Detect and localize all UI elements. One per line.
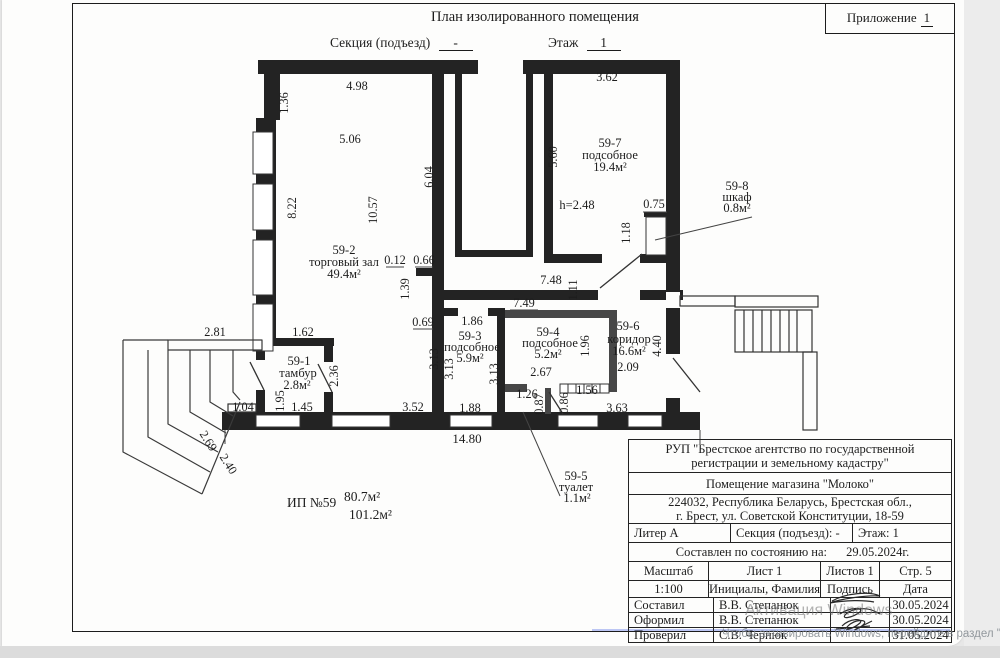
- section-cell: Секция (подъезд): -: [731, 524, 853, 542]
- room-label-59-7: 59-7 подсобное 19.4м²: [582, 136, 638, 174]
- room-label-59-4: 59-4 подсобное 5.2м²: [522, 325, 578, 361]
- svg-text:19.4м²: 19.4м²: [593, 160, 627, 174]
- dim-label: 4.40: [650, 335, 664, 357]
- stamp-organization: РУП "Брестское агентство по государствен…: [629, 440, 951, 473]
- svg-text:59-6: 59-6: [617, 319, 640, 333]
- signature-cell: [831, 613, 890, 627]
- stamp-subheader-row: 1:100 Инициалы, Фамилия Подпись Дата: [629, 581, 951, 598]
- room-label-59-8: 59-8 шкаф 0.8м²: [722, 179, 751, 215]
- compiled-label: Составлен по состоянию на:: [676, 545, 827, 559]
- stamp-premises: Помещение магазина "Молоко": [629, 473, 951, 495]
- dim-label: 3.13: [442, 358, 456, 380]
- date-header: Дата: [880, 581, 951, 597]
- dim-label: 3.62: [596, 70, 618, 84]
- title-block: РУП "Брестское агентство по государствен…: [628, 439, 952, 643]
- dim-label: 3.52: [402, 400, 424, 414]
- dim-label: 7.49: [513, 296, 535, 310]
- dim-label: 1.56: [576, 383, 598, 397]
- area-total-bottom: 101.2м²: [349, 507, 392, 522]
- stamp-address: 224032, Республика Беларусь, Брестская о…: [629, 495, 951, 524]
- dim-label: 0.87: [532, 393, 546, 415]
- dim-label: 1.04: [232, 400, 254, 414]
- svg-text:5.9м²: 5.9м²: [456, 351, 484, 365]
- initials-header: Инициалы, Фамилия: [709, 581, 821, 597]
- scale-value: 1:100: [629, 581, 709, 597]
- dim-label: 7.48: [540, 273, 562, 287]
- svg-text:49.4м²: 49.4м²: [327, 267, 361, 281]
- dim-label: 0.75: [643, 197, 665, 211]
- dim-label: 3.13: [427, 348, 441, 370]
- dim-label: 1.18: [619, 222, 633, 244]
- dim-label: 1.86: [461, 314, 483, 328]
- dim-label: 14.80: [452, 431, 481, 446]
- room-label-59-1: 59-1 тамбур 2.8м²: [279, 354, 316, 392]
- dim-label: 2.81: [204, 325, 226, 339]
- dim-label: 1.88: [459, 401, 481, 415]
- dim-label: 0.66: [413, 253, 435, 267]
- compiled-date: 29.05.2024г.: [846, 545, 909, 559]
- room-label-59-5: 59-5 туалет 1.1м²: [559, 469, 594, 505]
- totals-block: ИП №59 80.7м² 101.2м²: [287, 489, 392, 522]
- dim-label: 1.96: [578, 335, 592, 357]
- svg-text:5.2м²: 5.2м²: [534, 347, 562, 361]
- ceiling-height-note: h=2.48: [559, 198, 594, 212]
- dim-label: 1.39: [398, 278, 412, 300]
- dim-label: 2.40: [217, 451, 240, 477]
- floor-cell: Этаж: 1: [853, 524, 951, 542]
- unit-number: ИП №59: [287, 495, 337, 510]
- dim-label: 5.06: [339, 132, 361, 146]
- stamp-liter-row: Литер А Секция (подъезд): - Этаж: 1: [629, 524, 951, 543]
- dim-label: 6.04: [422, 166, 436, 188]
- dim-label: 2.69: [197, 428, 220, 454]
- closet-59-8: [646, 217, 666, 255]
- dim-label: 2.36: [327, 365, 341, 387]
- liter-cell: Литер А: [629, 524, 731, 542]
- dim-label: 1.36: [277, 92, 291, 114]
- signature-cell: [831, 628, 890, 642]
- windows-left: [253, 132, 273, 351]
- dim-label: 2.09: [617, 360, 639, 374]
- svg-text:0.8м²: 0.8м²: [723, 201, 751, 215]
- stamp-row-compiled: Составил В.В. Степанюк 30.05.2024: [629, 598, 951, 613]
- dim-label: 1.45: [291, 400, 313, 414]
- sign-header: Подпись: [821, 581, 880, 597]
- svg-text:2.8м²: 2.8м²: [283, 378, 311, 392]
- dim-label: 2.67: [530, 365, 552, 379]
- dim-label: 4.98: [346, 79, 368, 93]
- area-total-top: 80.7м²: [344, 489, 380, 504]
- stamp-date-row: Составлен по состоянию на: 29.05.2024г.: [629, 543, 951, 562]
- sheets-cell: Листов 1: [821, 562, 880, 580]
- dim-label: 3.63: [606, 401, 628, 415]
- dim-label: 10.57: [366, 196, 380, 224]
- svg-text:16.6м²: 16.6м²: [612, 344, 646, 358]
- dim-label: 1.62: [292, 325, 314, 339]
- scan-margin-bottom: [0, 646, 1000, 658]
- stamp-row-drafted: Оформил В.В. Степанюк 30.05.2024: [629, 613, 951, 628]
- dim-label: 0.86: [557, 392, 571, 414]
- dim-label: 3.13: [487, 363, 501, 385]
- stamp-sheet-row: Масштаб Лист 1 Листов 1 Стр. 5: [629, 562, 951, 581]
- scanned-floor-plan-page: Приложение 1 План изолированного помещен…: [0, 0, 1000, 658]
- dim-label: 5.60: [546, 146, 560, 168]
- dim-label: 1.95: [273, 390, 287, 412]
- room-label-59-2: 59-2 торговый зал 49.4м²: [309, 243, 379, 281]
- svg-text:1.1м²: 1.1м²: [563, 491, 591, 505]
- sheet-cell: Лист 1: [709, 562, 821, 580]
- scale-header: Масштаб: [629, 562, 709, 580]
- dim-label: 1.11: [566, 279, 580, 300]
- page-cell: Стр. 5: [880, 562, 951, 580]
- dim-label: 0.12: [384, 253, 406, 267]
- dim-label: 8.22: [285, 197, 299, 219]
- signature-cell: [831, 598, 890, 612]
- stamp-row-checked: Проверил С.В. Чернюк 31.05.2024: [629, 628, 951, 642]
- dim-label: 0.69: [412, 315, 434, 329]
